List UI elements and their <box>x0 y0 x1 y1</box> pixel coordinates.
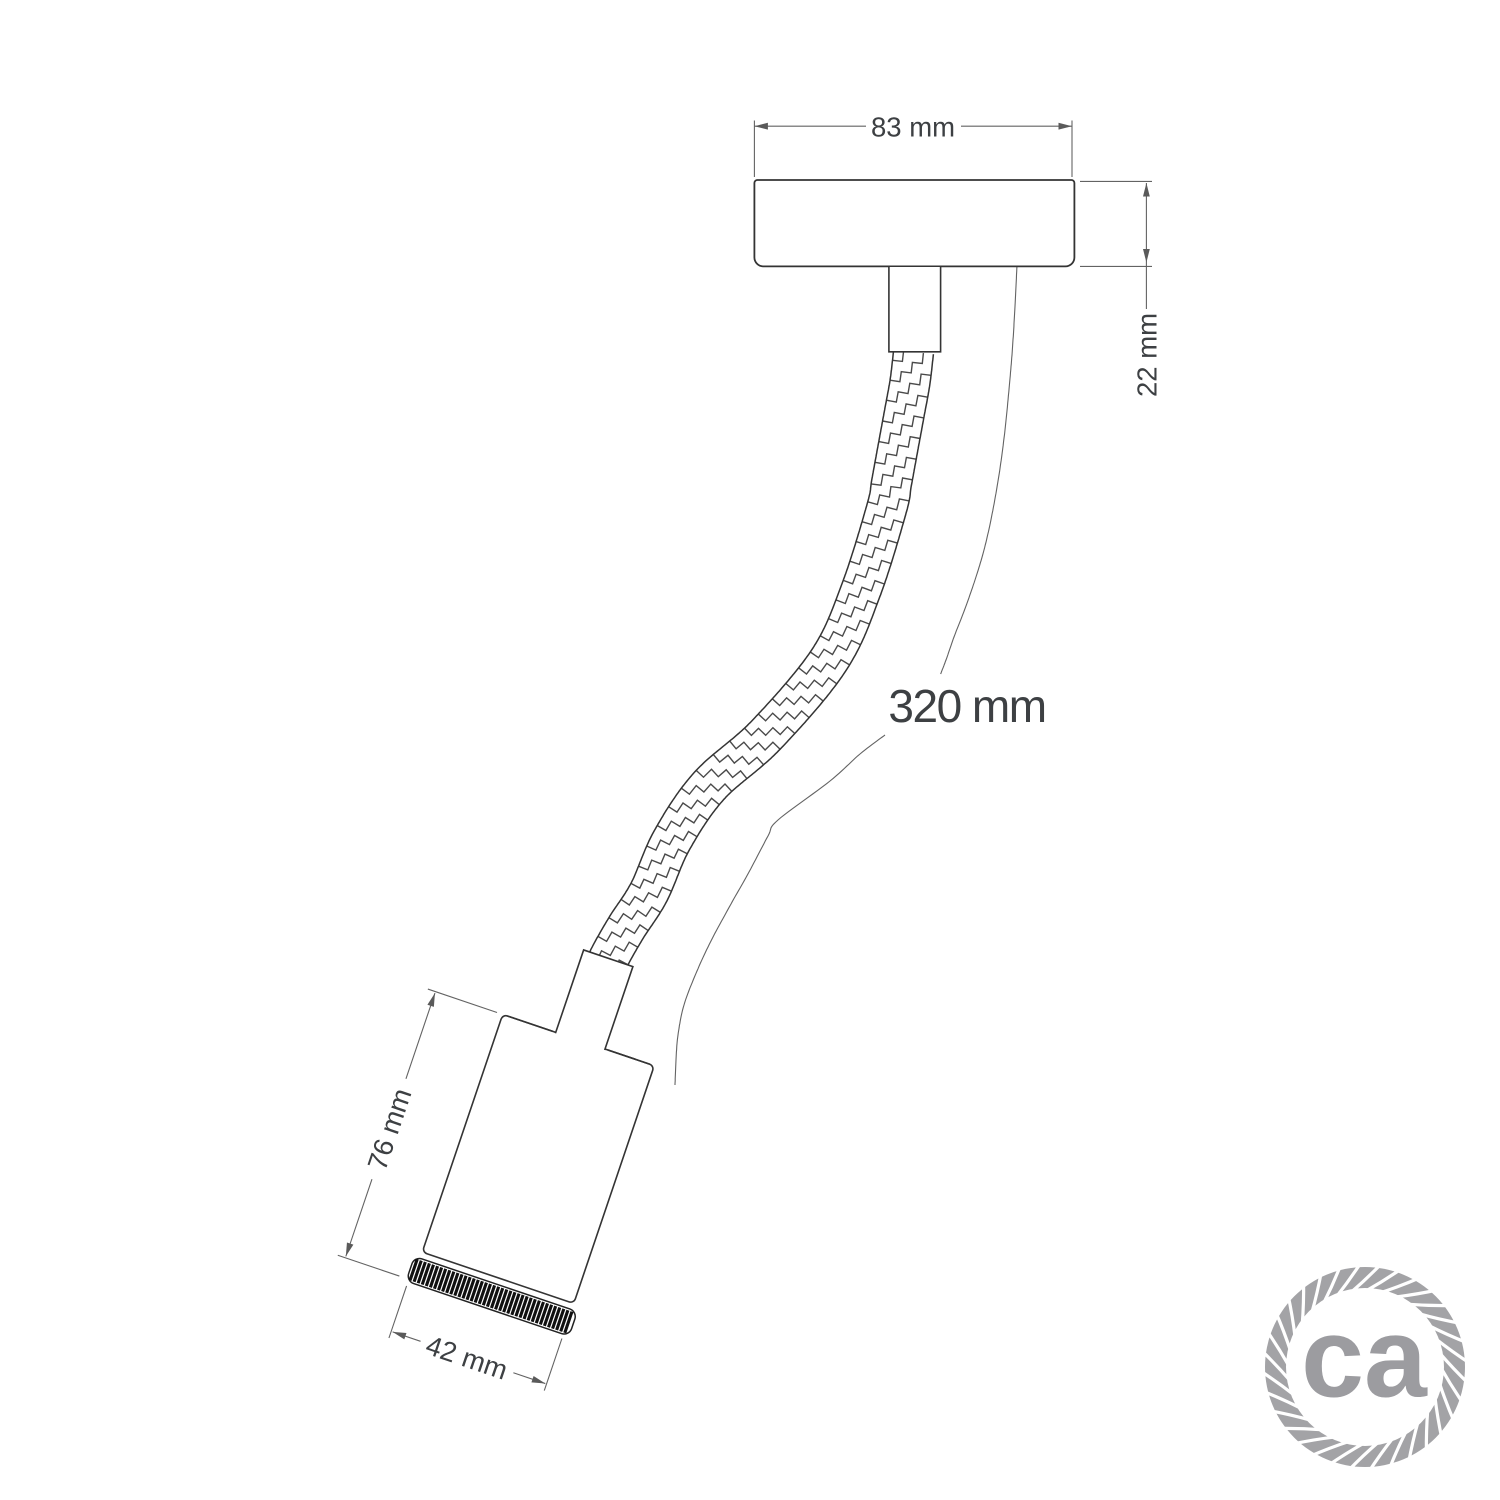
svg-text:320 mm: 320 mm <box>888 680 1045 732</box>
svg-text:83 mm: 83 mm <box>871 112 955 143</box>
svg-text:22 mm: 22 mm <box>1132 313 1163 397</box>
svg-text:ca: ca <box>1301 1295 1428 1421</box>
